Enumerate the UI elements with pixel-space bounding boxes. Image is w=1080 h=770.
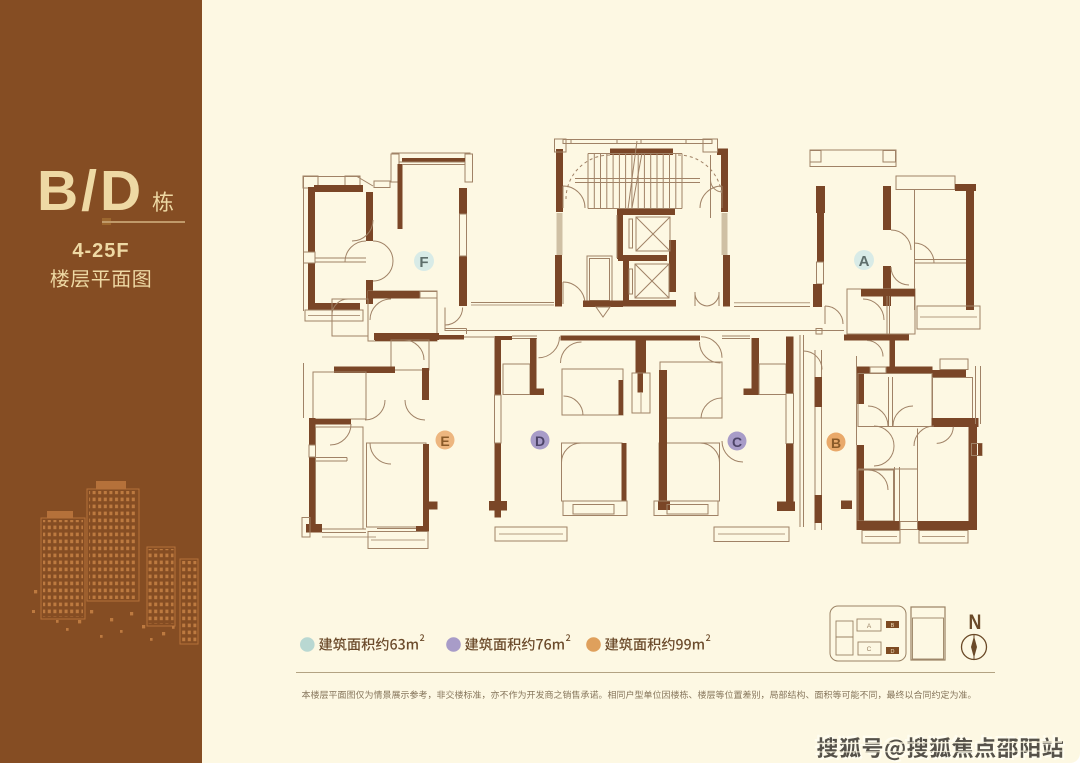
svg-text:N: N [969,611,982,635]
svg-text:D: D [891,649,895,655]
svg-text:B: B [831,435,841,451]
svg-text:C: C [867,646,872,653]
svg-text:A: A [867,623,872,630]
svg-text:C: C [732,434,742,450]
svg-text:B: B [891,623,895,629]
svg-text:D: D [535,433,545,449]
svg-text:E: E [440,433,449,449]
svg-text:A: A [859,253,870,270]
svg-text:F: F [419,254,428,271]
